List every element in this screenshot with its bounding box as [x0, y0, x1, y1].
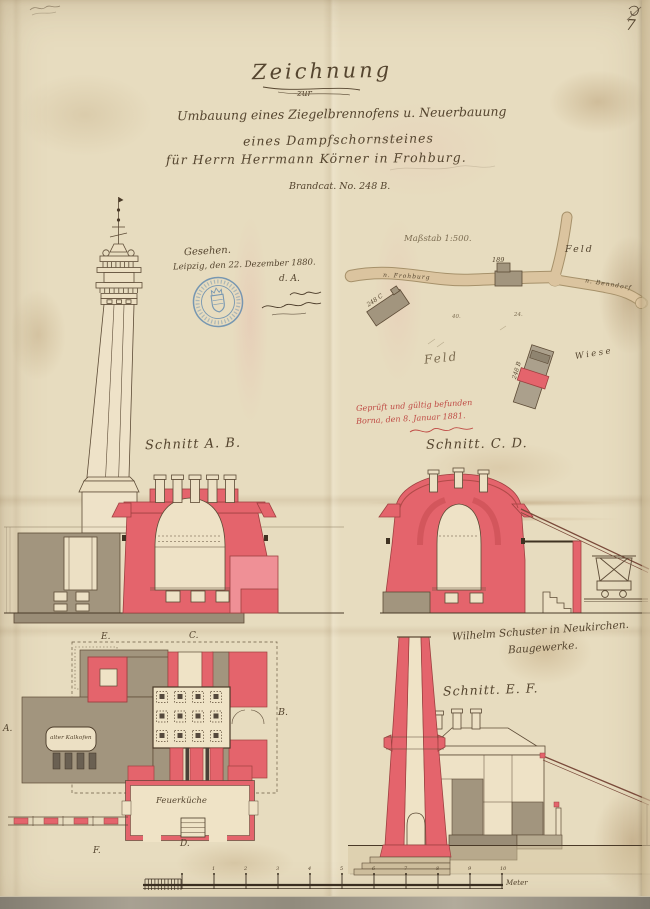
scale-tick-label: 5 — [340, 866, 343, 872]
corner-scribble-top-left — [30, 6, 60, 15]
map-parcel-no-40: 40. — [452, 314, 461, 320]
map-label-feld-top: Feld — [565, 244, 594, 255]
map-building-189 — [495, 263, 522, 286]
plan-view — [8, 642, 277, 842]
site-map — [351, 217, 647, 410]
drawing-sheet: 7 Zeichnung zur Umbauung eines Ziegelbre… — [0, 0, 650, 909]
scale-tick-label: 1 — [212, 866, 215, 872]
paper-edge-right — [642, 0, 650, 909]
map-scale-label: Maßstab 1:500. — [404, 234, 472, 244]
scale-tick-label: 9 — [468, 866, 471, 872]
scan-table-edge — [0, 896, 650, 909]
plan-label-old-kiln: alter Kalkofen — [50, 735, 92, 741]
map-field-ticks — [428, 326, 506, 347]
inspection-signature — [410, 428, 473, 432]
plan-marker-c: C. — [189, 631, 198, 641]
scale-tick-label: 3 — [276, 866, 279, 872]
section-ef — [348, 637, 650, 875]
section-ab — [4, 475, 344, 623]
section-cd — [379, 468, 650, 613]
plan-marker-b: B. — [278, 707, 288, 718]
section-label-cd: Schnitt. C. D. — [426, 436, 528, 453]
scale-tick-label: 4 — [308, 866, 311, 872]
scale-tick-label: 10 — [500, 866, 506, 872]
page-number: 7 — [625, 16, 636, 35]
plan-marker-a: A. — [3, 724, 12, 734]
section-label-ab: Schnitt A. B. — [145, 436, 241, 454]
scale-bar-unit-label: Meter — [506, 879, 528, 887]
map-parcel-189: 189 — [492, 256, 504, 264]
chimney-elevation — [79, 197, 142, 533]
title-heading: Zeichnung — [252, 58, 392, 84]
scale-tick-label: 8 — [436, 866, 439, 872]
scale-tick-label: 7 — [404, 866, 407, 872]
scale-tick-label: 6 — [372, 866, 375, 872]
scale-bar — [143, 874, 503, 890]
official-stamp — [190, 274, 245, 329]
scale-tick-label: 2 — [244, 866, 247, 872]
plan-marker-d: D. — [180, 839, 190, 849]
title-line-3: für Herrn Herrmann Körner in Frohburg. — [166, 150, 467, 168]
title-connector: zur — [297, 89, 312, 99]
plan-label-fire-kitchen: Feuerküche — [156, 796, 207, 806]
plan-marker-e: E. — [101, 632, 110, 642]
title-file-ref: Brandcat. No. 248 B. — [289, 181, 390, 192]
approval-initials: d. A. — [279, 274, 300, 284]
approval-signatures — [262, 292, 321, 315]
kiln-cart — [584, 556, 648, 602]
map-parcel-no-24: 24. — [514, 312, 523, 318]
plan-marker-f: F. — [93, 846, 101, 856]
